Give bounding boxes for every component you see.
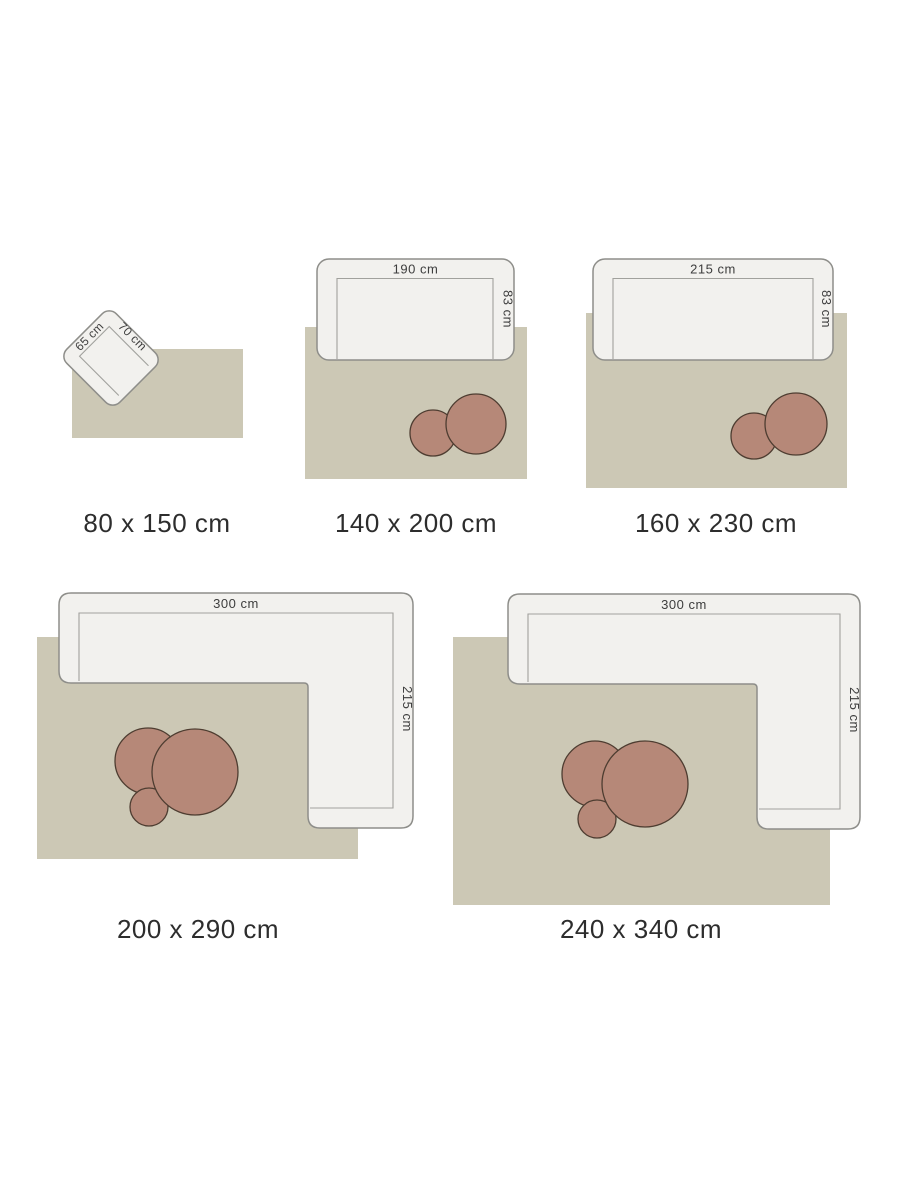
panel-140x200: 190 cm 83 cm 140 x 200 cm: [305, 259, 527, 538]
corner-sofa-width-label: 300 cm: [213, 596, 259, 611]
sofa-depth-label: 83 cm: [501, 290, 516, 328]
sofa-2-seat: 190 cm 83 cm: [317, 259, 516, 360]
rug-size-guide: 65 cm 70 cm 80 x 150 cm 190 cm 83 cm 140…: [0, 0, 900, 1200]
panel-80x150: 65 cm 70 cm 80 x 150 cm: [60, 305, 243, 538]
panel-160x230: 215 cm 83 cm 160 x 230 cm: [586, 259, 847, 538]
sofa-width-label: 190 cm: [393, 262, 439, 277]
corner-sofa-width-label: 300 cm: [661, 597, 707, 612]
sofa-3-seat: 215 cm 83 cm: [593, 259, 834, 360]
corner-sofa-depth-label: 215 cm: [400, 686, 415, 732]
size-label-200x290: 200 x 290 cm: [117, 914, 279, 944]
coffee-table-circle: [152, 729, 238, 815]
size-label-80x150: 80 x 150 cm: [83, 508, 230, 538]
panel-240x340: 300 cm 215 cm 240 x 340 cm: [453, 594, 862, 944]
sofa-width-label: 215 cm: [690, 262, 736, 277]
coffee-table-circle: [446, 394, 506, 454]
panel-200x290: 300 cm 215 cm 200 x 290 cm: [37, 593, 415, 944]
size-label-240x340: 240 x 340 cm: [560, 914, 722, 944]
coffee-table-circle: [765, 393, 827, 455]
corner-sofa-depth-label: 215 cm: [847, 687, 862, 733]
sofa-depth-label: 83 cm: [819, 290, 834, 328]
coffee-table-circle: [602, 741, 688, 827]
size-label-160x230: 160 x 230 cm: [635, 508, 797, 538]
size-guide-illustration: 65 cm 70 cm 80 x 150 cm 190 cm 83 cm 140…: [0, 0, 900, 1200]
size-label-140x200: 140 x 200 cm: [335, 508, 497, 538]
